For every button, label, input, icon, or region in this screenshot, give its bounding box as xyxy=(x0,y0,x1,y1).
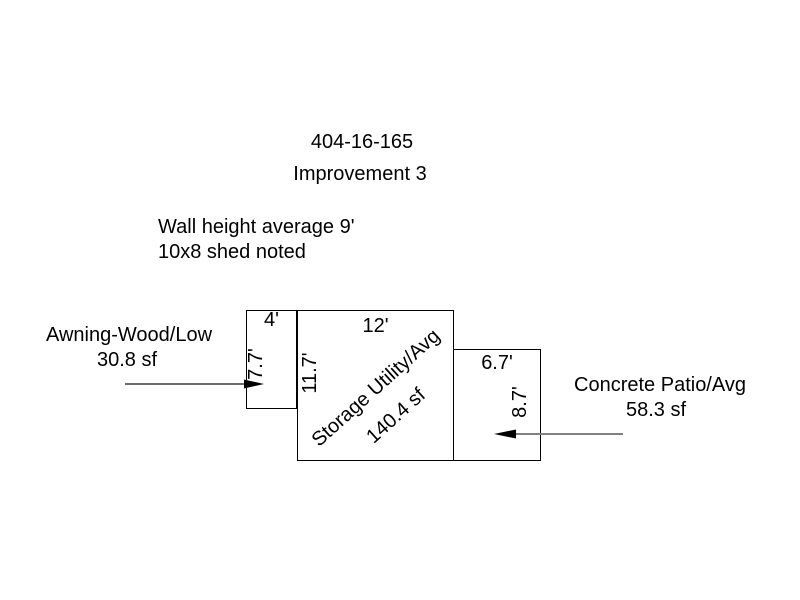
storage-height-dim: 11.7' xyxy=(300,352,320,393)
improvement-title: Improvement 3 xyxy=(260,163,460,186)
awning-area-label: 30.8 sf xyxy=(27,349,227,372)
awning-pointer-arrow xyxy=(125,380,264,389)
parcel-id: 404-16-165 xyxy=(262,131,462,154)
patio-width-dim: 6.7' xyxy=(453,352,541,375)
pointer-arrows-layer xyxy=(0,0,800,600)
patio-height-dim: 8.7' xyxy=(510,386,530,418)
note-shed: 10x8 shed noted xyxy=(158,241,306,264)
patio-area-label: 58.3 sf xyxy=(556,399,756,422)
property-sketch-canvas: 404-16-165 Improvement 3 Wall height ave… xyxy=(0,0,800,600)
note-wall-height: Wall height average 9' xyxy=(158,216,355,239)
awning-width-dim: 4' xyxy=(246,309,297,332)
awning-name-label: Awning-Wood/Low xyxy=(29,324,229,347)
awning-height-dim: 7.7' xyxy=(246,348,266,380)
patio-name-label: Concrete Patio/Avg xyxy=(560,374,760,397)
